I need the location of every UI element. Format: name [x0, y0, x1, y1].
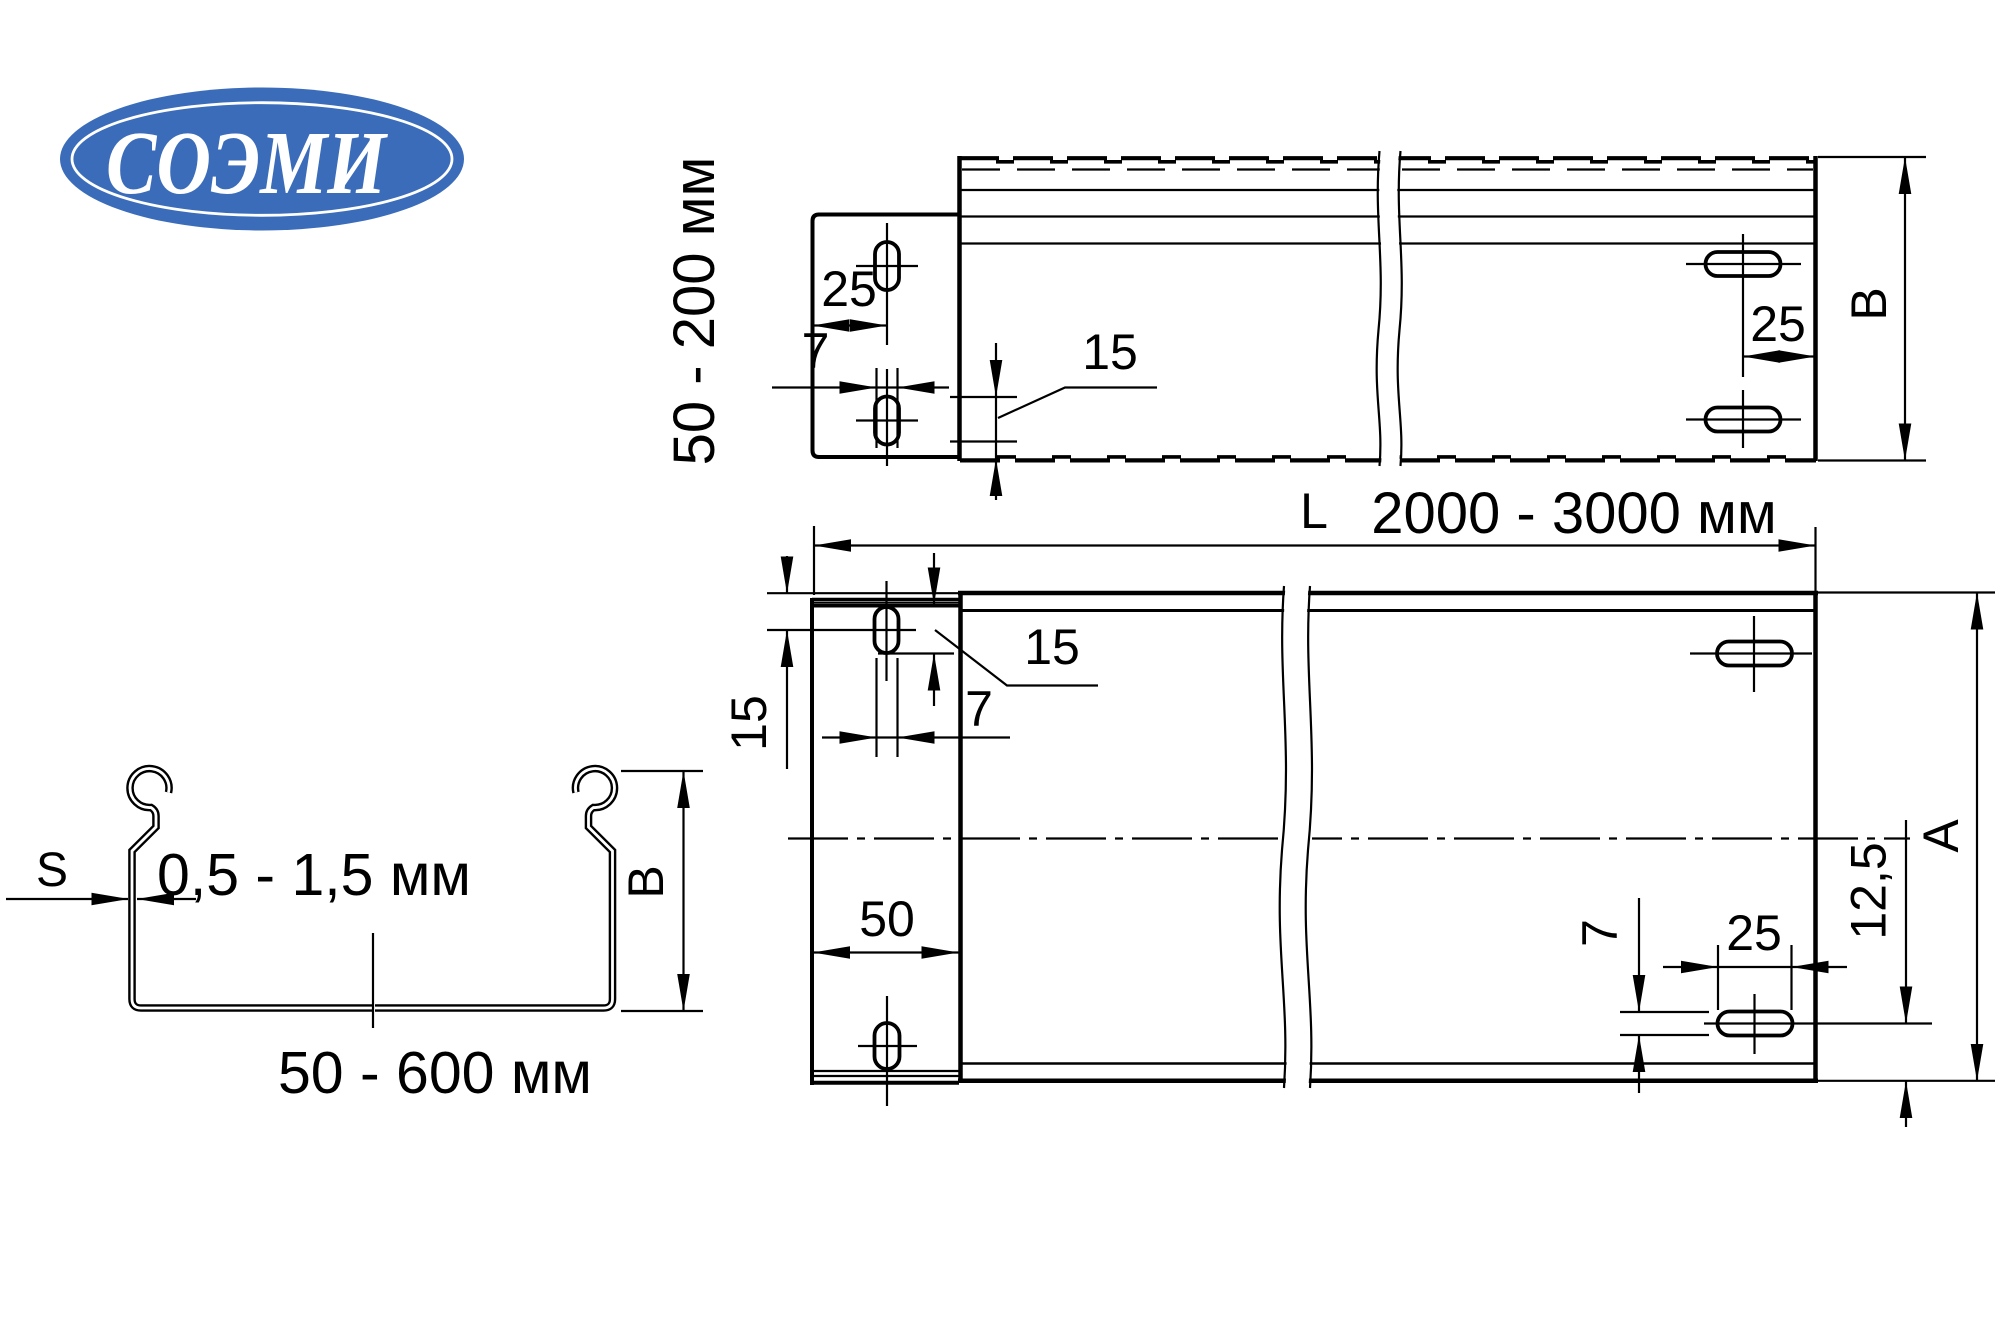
- svg-text:2000 - 3000 мм: 2000 - 3000 мм: [1371, 481, 1776, 546]
- svg-text:7: 7: [965, 681, 993, 737]
- svg-text:B: B: [1841, 287, 1897, 320]
- svg-text:B: B: [618, 865, 674, 898]
- svg-text:50 - 600 мм: 50 - 600 мм: [278, 1040, 592, 1106]
- svg-text:7: 7: [802, 323, 830, 379]
- svg-text:25: 25: [1750, 296, 1806, 352]
- svg-text:L: L: [1300, 483, 1328, 539]
- svg-text:12,5: 12,5: [1841, 842, 1897, 939]
- svg-text:7: 7: [1572, 919, 1628, 947]
- svg-text:15: 15: [1024, 619, 1080, 675]
- svg-text:СОЭМИ: СОЭМИ: [106, 114, 389, 213]
- svg-text:15: 15: [721, 695, 777, 751]
- svg-text:25: 25: [821, 261, 877, 317]
- svg-text:0,5 - 1,5 мм: 0,5 - 1,5 мм: [157, 842, 471, 908]
- svg-text:15: 15: [1082, 324, 1138, 380]
- svg-text:50 - 200 мм: 50 - 200 мм: [662, 157, 727, 466]
- svg-text:A: A: [1913, 819, 1969, 853]
- svg-text:S: S: [36, 844, 68, 897]
- svg-text:25: 25: [1726, 905, 1782, 961]
- svg-text:50: 50: [859, 891, 915, 947]
